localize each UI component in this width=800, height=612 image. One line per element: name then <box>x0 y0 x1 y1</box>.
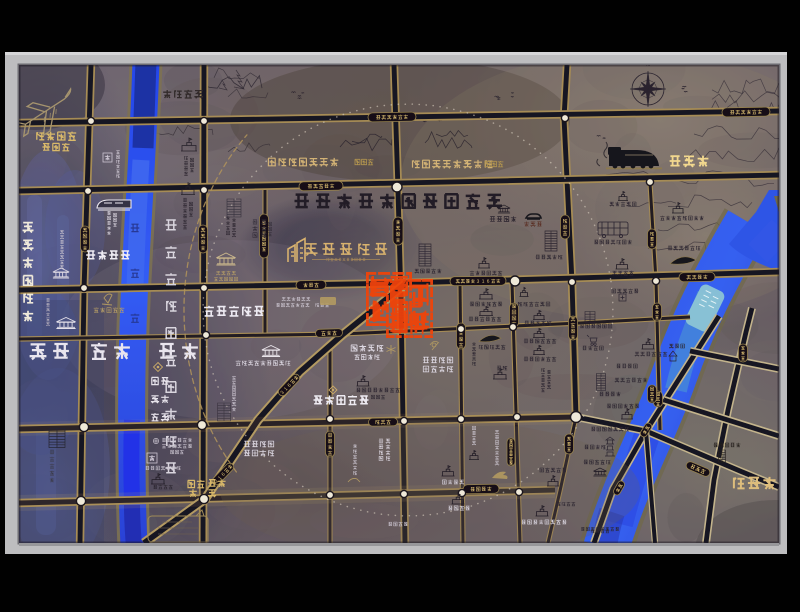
svg-text:3: 3 <box>477 279 480 285</box>
svg-text:6: 6 <box>487 279 490 285</box>
svg-text:1: 1 <box>482 279 485 285</box>
